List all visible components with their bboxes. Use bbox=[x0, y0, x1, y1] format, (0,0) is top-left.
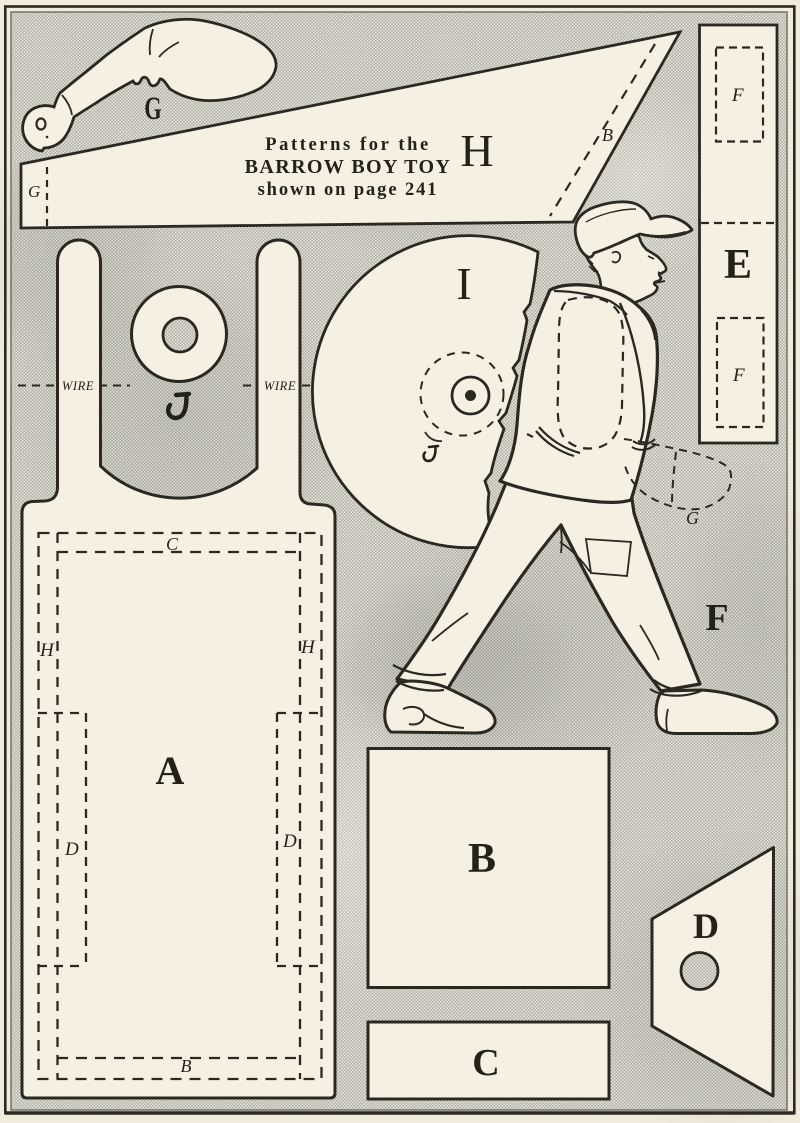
svg-text:H: H bbox=[460, 125, 493, 176]
svg-text:Patterns for the: Patterns for the bbox=[265, 135, 431, 155]
svg-text:WIRE: WIRE bbox=[264, 379, 296, 393]
svg-text:D: D bbox=[64, 839, 79, 860]
svg-text:G: G bbox=[144, 91, 161, 127]
svg-text:D: D bbox=[693, 906, 719, 946]
svg-text:WIRE: WIRE bbox=[62, 379, 94, 393]
svg-text:G: G bbox=[686, 508, 699, 528]
svg-text:E: E bbox=[724, 242, 752, 288]
svg-text:H: H bbox=[39, 640, 55, 661]
svg-text:G: G bbox=[28, 182, 40, 201]
svg-text:C: C bbox=[166, 534, 179, 554]
svg-text:I: I bbox=[456, 258, 471, 309]
svg-text:shown on page 241: shown on page 241 bbox=[258, 180, 439, 200]
svg-text:F: F bbox=[732, 365, 745, 386]
svg-text:B: B bbox=[468, 836, 496, 882]
svg-text:D: D bbox=[282, 831, 297, 852]
svg-text:F: F bbox=[731, 85, 744, 106]
svg-text:B: B bbox=[181, 1056, 192, 1076]
svg-text:F: F bbox=[705, 597, 728, 639]
svg-text:C: C bbox=[472, 1042, 499, 1084]
svg-text:BARROW BOY TOY: BARROW BOY TOY bbox=[245, 156, 452, 178]
svg-text:B: B bbox=[602, 125, 613, 145]
svg-text:H: H bbox=[300, 637, 316, 658]
svg-text:A: A bbox=[156, 748, 185, 793]
